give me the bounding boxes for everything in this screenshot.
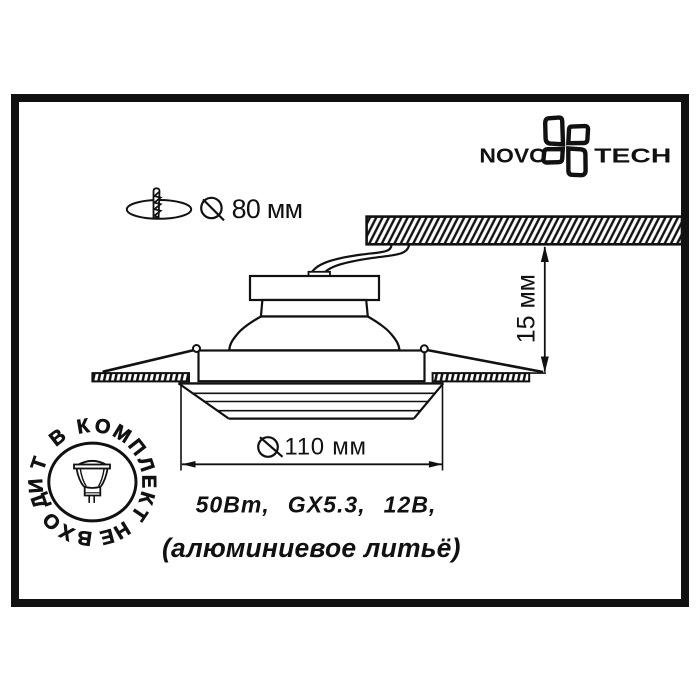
svg-text:В: В bbox=[76, 526, 93, 550]
svg-text:Л: Л bbox=[133, 454, 158, 474]
svg-text:50Вm, GX5.3, 12В,: 50Вm, GX5.3, 12В, bbox=[196, 492, 437, 518]
svg-text:В: В bbox=[45, 425, 70, 451]
svg-text:Т: Т bbox=[27, 454, 52, 473]
svg-text:Е: Е bbox=[137, 475, 159, 489]
svg-text:110 мм: 110 мм bbox=[284, 433, 366, 460]
svg-text:(алюминиевое лиmьё): (алюминиевое лиmьё) bbox=[162, 533, 461, 563]
svg-text:К: К bbox=[75, 415, 91, 439]
svg-text:15 мм: 15 мм bbox=[512, 274, 540, 343]
svg-text:80 мм: 80 мм bbox=[232, 194, 304, 224]
svg-text:И: И bbox=[25, 478, 48, 494]
svg-text:TECH: TECH bbox=[594, 146, 671, 168]
svg-text:NOVO: NOVO bbox=[479, 146, 547, 168]
svg-text:О: О bbox=[93, 415, 112, 439]
svg-text:Т: Т bbox=[126, 502, 151, 524]
